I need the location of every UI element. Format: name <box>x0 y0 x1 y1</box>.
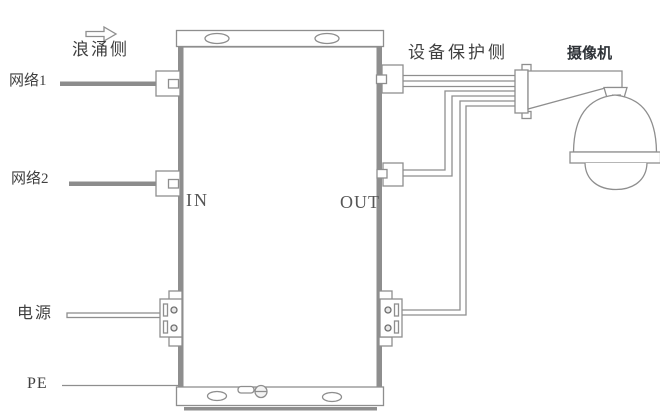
network-in-wires <box>60 82 158 187</box>
power-out-connector <box>379 291 402 346</box>
bottom-flange-hole-right <box>323 393 342 402</box>
top-flange-hole-left <box>205 34 229 44</box>
camera-label: 摄像机 <box>567 46 612 63</box>
right-block-arrow-icon <box>86 27 116 41</box>
bottom-flange-hole-left <box>208 392 227 401</box>
network2-label: 网络2 <box>11 171 49 188</box>
diagram-drawing <box>0 0 660 412</box>
protected-side-label: 设备保护侧 <box>408 44 508 63</box>
network1-in-connector <box>156 71 180 96</box>
out-wires <box>402 76 517 316</box>
base-bar <box>184 407 377 411</box>
top-flange-hole-right <box>315 34 339 44</box>
surge-side-label: 浪涌侧 <box>72 41 129 60</box>
network1-in-wire <box>60 82 158 87</box>
box-body <box>181 47 380 388</box>
camera-band <box>570 152 660 163</box>
wiring-diagram: 浪涌侧 网络1 网络2 电源 PE IN OUT 设备保护侧 摄像机 <box>0 0 660 412</box>
pe-label: PE <box>27 375 48 393</box>
in-label: IN <box>186 191 209 211</box>
out-label: OUT <box>340 193 380 213</box>
camera-dome <box>585 163 647 190</box>
network1-out-wires <box>403 76 517 87</box>
surge-protector-box <box>177 31 384 411</box>
dome-camera-illustration <box>570 95 660 190</box>
power-in-connector <box>160 291 182 346</box>
network2-in-wire <box>69 182 158 187</box>
network2-in-connector <box>156 171 180 196</box>
power-in-wire <box>67 313 161 318</box>
power-out-wires <box>402 101 517 315</box>
camera-bell <box>574 95 657 152</box>
power-label: 电源 <box>17 305 53 323</box>
network1-label: 网络1 <box>9 73 47 90</box>
